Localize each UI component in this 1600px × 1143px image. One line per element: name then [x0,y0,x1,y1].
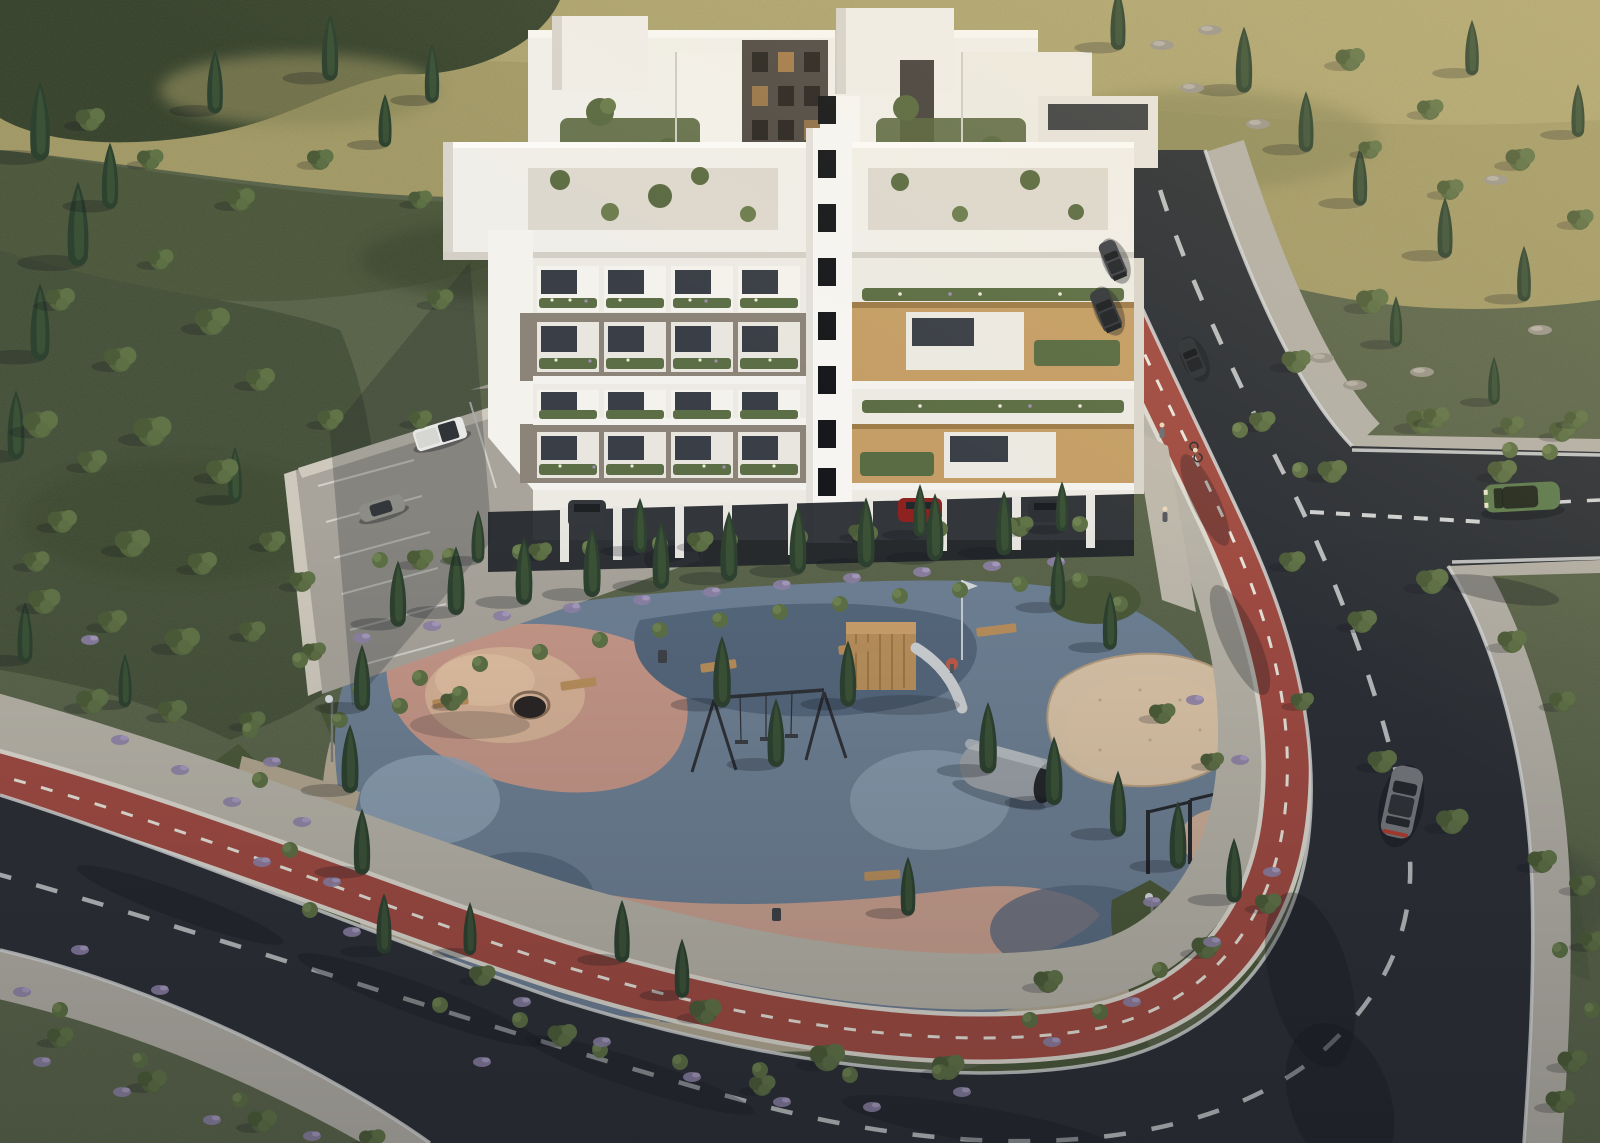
dusk-wash [0,0,1600,1143]
scene-svg [0,0,1600,1143]
aerial-render [0,0,1600,1143]
